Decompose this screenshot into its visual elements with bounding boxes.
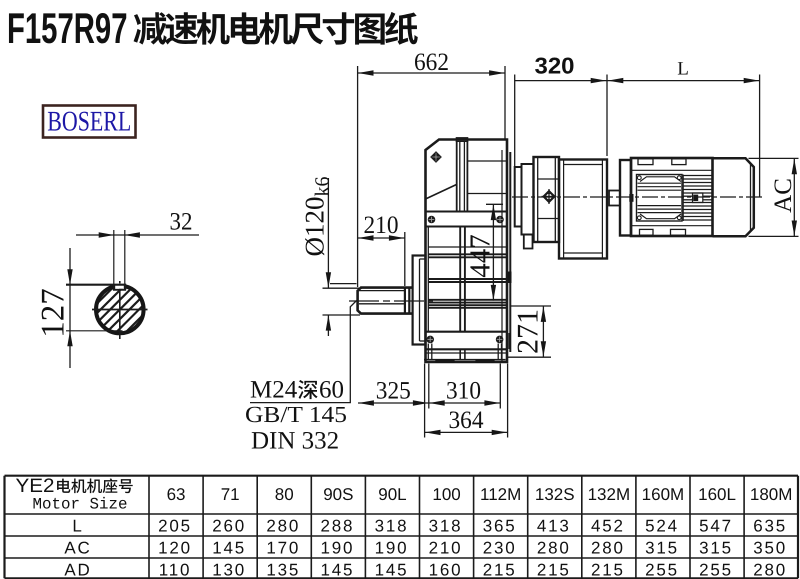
svg-text:288: 288	[320, 516, 354, 535]
svg-text:230: 230	[483, 538, 517, 557]
svg-text:180M: 180M	[750, 485, 793, 504]
svg-text:BOSERL: BOSERL	[47, 107, 131, 138]
svg-text:160: 160	[429, 560, 463, 579]
svg-text:280: 280	[591, 538, 625, 557]
svg-text:L: L	[72, 516, 83, 535]
svg-text:215: 215	[537, 560, 571, 579]
svg-text:190: 190	[375, 538, 409, 557]
svg-text:AC: AC	[770, 178, 797, 213]
svg-text:160M: 160M	[642, 485, 685, 504]
svg-text:112M: 112M	[480, 485, 521, 504]
svg-text:135: 135	[266, 560, 300, 579]
svg-text:145: 145	[320, 560, 354, 579]
svg-text:280: 280	[537, 538, 571, 557]
svg-text:AC: AC	[64, 538, 91, 557]
svg-text:90L: 90L	[378, 485, 406, 504]
svg-text:205: 205	[158, 516, 192, 535]
svg-text:63: 63	[167, 485, 186, 504]
svg-text:215: 215	[591, 560, 625, 579]
svg-text:145: 145	[212, 538, 246, 557]
svg-text:365: 365	[483, 516, 517, 535]
svg-text:M24: M24	[250, 377, 298, 404]
svg-text:160L: 160L	[698, 485, 736, 504]
svg-text:F157R97: F157R97	[7, 5, 128, 53]
svg-text:310: 310	[446, 378, 481, 405]
svg-text:524: 524	[645, 516, 679, 535]
svg-text:255: 255	[699, 560, 733, 579]
svg-text:AD: AD	[64, 560, 91, 579]
svg-text:32: 32	[170, 209, 193, 236]
svg-text:80: 80	[275, 485, 294, 504]
svg-text:170: 170	[266, 538, 300, 557]
svg-text:Motor Size: Motor Size	[33, 496, 128, 514]
svg-text:318: 318	[429, 516, 463, 535]
svg-text:315: 315	[699, 538, 733, 557]
svg-text:325: 325	[376, 378, 411, 405]
svg-text:120: 120	[158, 538, 192, 557]
svg-text:315: 315	[645, 538, 679, 557]
svg-text:90S: 90S	[323, 485, 353, 504]
svg-text:Ø120k6: Ø120k6	[300, 177, 334, 257]
svg-text:132M: 132M	[588, 485, 631, 504]
svg-text:127: 127	[36, 288, 72, 338]
svg-text:215: 215	[483, 560, 517, 579]
svg-text:130: 130	[212, 560, 246, 579]
svg-text:318: 318	[375, 516, 409, 535]
svg-text:662: 662	[414, 49, 449, 76]
svg-text:GB/T 145: GB/T 145	[245, 402, 347, 427]
svg-text:190: 190	[320, 538, 354, 557]
svg-text:100: 100	[432, 485, 460, 504]
svg-text:110: 110	[159, 560, 192, 579]
svg-text:635: 635	[753, 516, 787, 535]
svg-text:547: 547	[699, 516, 733, 535]
svg-text:255: 255	[645, 560, 679, 579]
svg-text:280: 280	[266, 516, 300, 535]
svg-text:DIN 332: DIN 332	[251, 428, 339, 455]
svg-text:320: 320	[535, 53, 575, 79]
svg-text:71: 71	[221, 485, 240, 504]
svg-text:452: 452	[591, 516, 625, 535]
svg-text:260: 260	[212, 516, 246, 535]
svg-text:145: 145	[375, 560, 409, 579]
svg-text:132S: 132S	[535, 485, 575, 504]
svg-text:364: 364	[449, 407, 484, 434]
svg-text:280: 280	[753, 560, 787, 579]
svg-text:447: 447	[465, 234, 497, 278]
svg-text:413: 413	[537, 516, 571, 535]
svg-text:271: 271	[512, 309, 545, 354]
svg-text:60: 60	[319, 377, 344, 404]
svg-text:L: L	[677, 59, 689, 80]
svg-text:210: 210	[364, 212, 399, 239]
svg-text:350: 350	[753, 538, 787, 557]
svg-text:210: 210	[429, 538, 463, 557]
svg-text:YE2: YE2	[16, 475, 55, 497]
